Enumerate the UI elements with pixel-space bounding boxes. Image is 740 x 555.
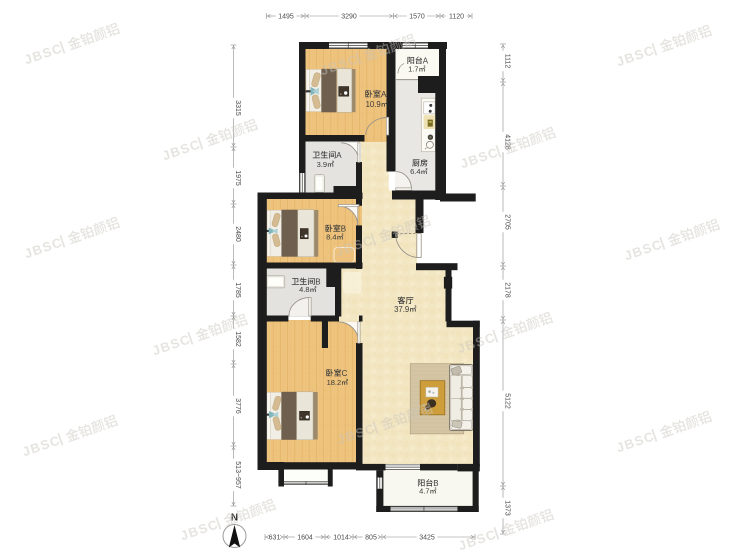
svg-text:1014: 1014	[333, 534, 349, 541]
svg-text:A: A	[381, 90, 387, 99]
svg-text:3.9: 3.9	[317, 160, 327, 169]
svg-text:1120: 1120	[449, 13, 464, 20]
svg-text:2705: 2705	[503, 214, 510, 230]
svg-text:2480: 2480	[234, 226, 241, 242]
svg-text:8.4: 8.4	[326, 233, 336, 242]
svg-text:631: 631	[269, 534, 281, 541]
svg-text:B: B	[433, 479, 438, 488]
svg-text:1373: 1373	[503, 500, 510, 516]
svg-text:3315: 3315	[234, 100, 241, 116]
svg-text:513~957: 513~957	[234, 461, 241, 489]
svg-text:1604: 1604	[297, 534, 313, 541]
svg-text:1112: 1112	[503, 54, 510, 69]
svg-text:37.9: 37.9	[394, 305, 409, 314]
svg-text:3290: 3290	[341, 13, 357, 20]
svg-text:4.8: 4.8	[299, 285, 309, 294]
svg-text:4.7: 4.7	[419, 487, 429, 496]
svg-text:A: A	[336, 151, 342, 160]
svg-text:5122: 5122	[503, 393, 510, 409]
svg-text:10.9: 10.9	[366, 100, 381, 109]
svg-text:B: B	[341, 224, 346, 233]
svg-text:B: B	[315, 277, 320, 286]
svg-text:18.2: 18.2	[327, 378, 342, 387]
svg-text:2178: 2178	[503, 282, 510, 298]
svg-text:1.7: 1.7	[408, 65, 418, 74]
svg-text:805: 805	[365, 534, 377, 541]
svg-text:6.4: 6.4	[410, 167, 420, 176]
svg-text:1570: 1570	[409, 13, 425, 20]
svg-text:1495: 1495	[278, 13, 294, 20]
svg-text:1975: 1975	[234, 170, 241, 186]
svg-text:3776: 3776	[234, 398, 241, 414]
svg-text:C: C	[342, 369, 348, 378]
svg-text:1582: 1582	[234, 331, 241, 347]
svg-text:A: A	[423, 56, 429, 65]
svg-text:1785: 1785	[234, 282, 241, 298]
svg-text:3425: 3425	[419, 534, 435, 541]
